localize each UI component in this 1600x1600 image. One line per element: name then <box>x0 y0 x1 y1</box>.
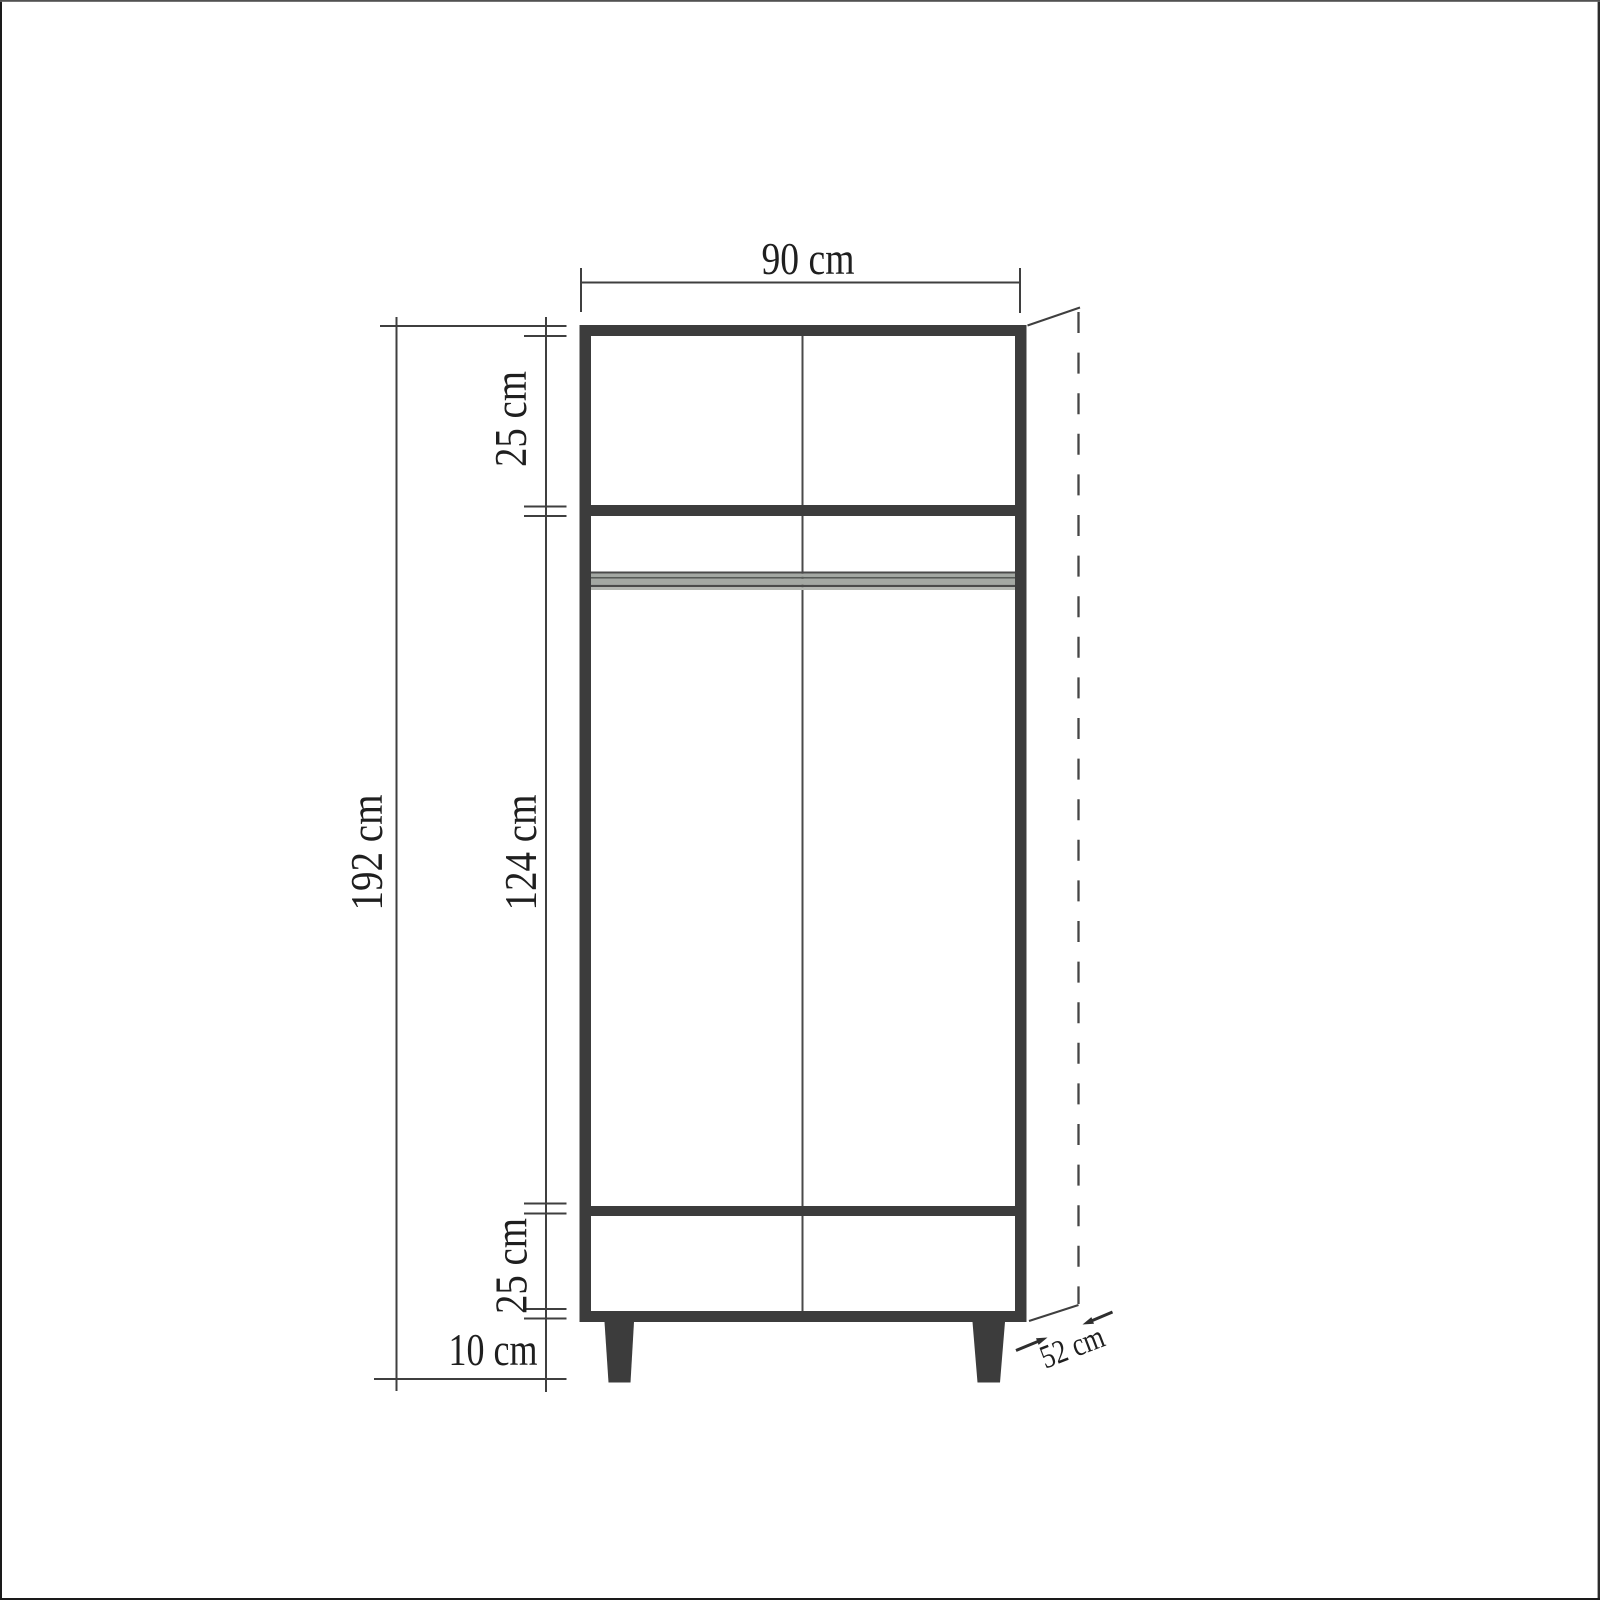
svg-text:25 cm: 25 cm <box>486 371 536 467</box>
svg-text:192 cm: 192 cm <box>342 795 392 911</box>
svg-text:90 cm: 90 cm <box>762 234 855 284</box>
svg-text:124 cm: 124 cm <box>496 795 546 911</box>
svg-text:25 cm: 25 cm <box>487 1218 537 1314</box>
svg-text:10 cm: 10 cm <box>449 1325 538 1375</box>
